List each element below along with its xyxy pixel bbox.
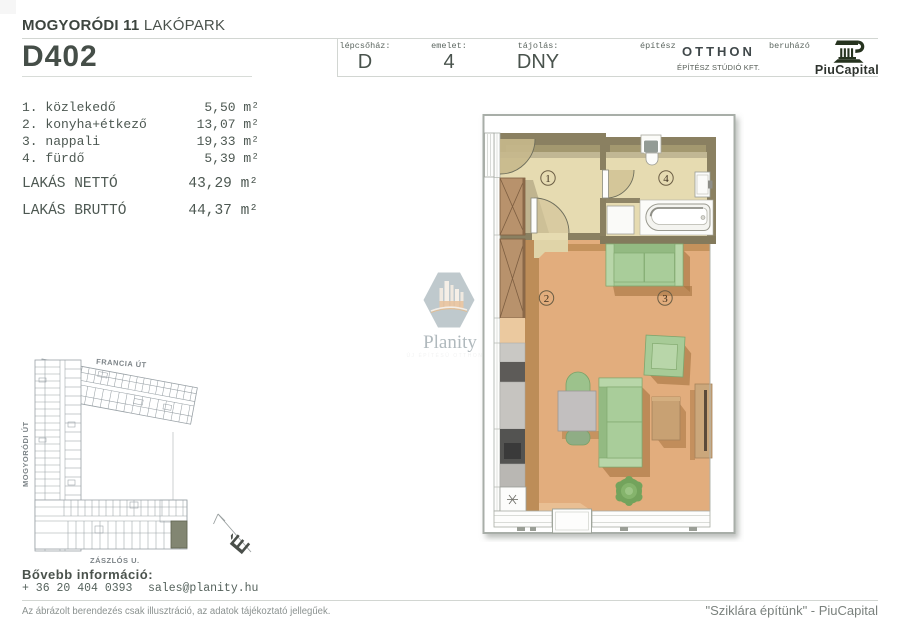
svg-text:É: É xyxy=(224,529,255,558)
svg-text:Planity: Planity xyxy=(423,332,477,353)
svg-text:2: 2 xyxy=(544,293,550,305)
svg-text:ZÁSZLÓS U.: ZÁSZLÓS U. xyxy=(90,556,140,565)
svg-text:FRANCIA ÚT: FRANCIA ÚT xyxy=(96,357,147,370)
svg-text:1: 1 xyxy=(545,173,551,185)
svg-text:4: 4 xyxy=(663,173,669,185)
svg-text:MOGYORÓDI ÚT: MOGYORÓDI ÚT xyxy=(21,421,30,487)
svg-text:3: 3 xyxy=(662,293,668,305)
